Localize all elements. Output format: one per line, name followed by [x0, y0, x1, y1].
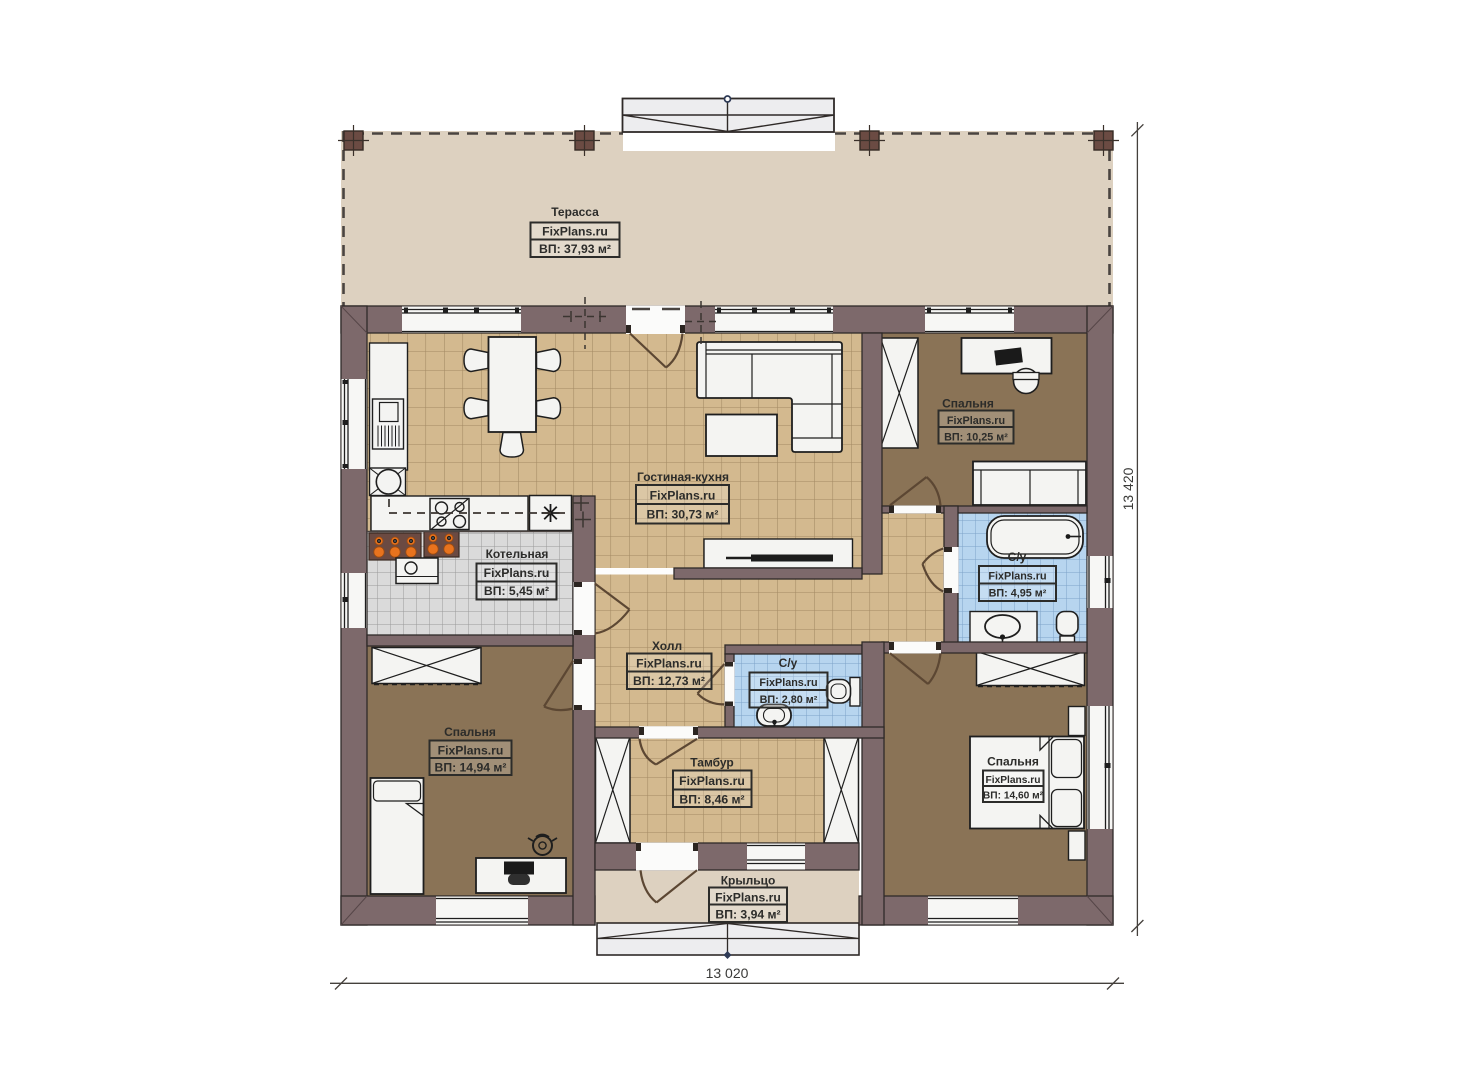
svg-text:FixPlans.ru: FixPlans.ru	[679, 774, 745, 788]
svg-text:ВП: 3,94 м²: ВП: 3,94 м²	[715, 908, 780, 922]
svg-text:С/у: С/у	[1008, 550, 1027, 564]
svg-text:Спальня: Спальня	[444, 725, 496, 739]
svg-text:FixPlans.ru: FixPlans.ru	[636, 657, 702, 671]
svg-text:Спальня: Спальня	[942, 397, 994, 411]
svg-text:Котельная: Котельная	[486, 547, 549, 561]
svg-text:Холл: Холл	[652, 639, 682, 653]
svg-text:Тамбур: Тамбур	[690, 756, 734, 770]
svg-text:FixPlans.ru: FixPlans.ru	[988, 571, 1046, 583]
svg-text:С/у: С/у	[779, 656, 798, 670]
svg-text:Терасса: Терасса	[551, 205, 599, 219]
svg-text:ВП: 30,73 м²: ВП: 30,73 м²	[647, 508, 719, 522]
svg-text:ВП: 14,94 м²: ВП: 14,94 м²	[435, 761, 507, 775]
svg-text:FixPlans.ru: FixPlans.ru	[986, 775, 1041, 786]
svg-text:FixPlans.ru: FixPlans.ru	[715, 891, 781, 905]
svg-text:ВП: 10,25 м²: ВП: 10,25 м²	[944, 432, 1008, 444]
svg-text:Спальня: Спальня	[987, 755, 1039, 769]
svg-text:ВП: 2,80 м²: ВП: 2,80 м²	[760, 694, 818, 706]
svg-text:ВП: 14,60 м²: ВП: 14,60 м²	[983, 791, 1044, 802]
svg-text:ВП: 8,46 м²: ВП: 8,46 м²	[679, 793, 744, 807]
svg-text:FixPlans.ru: FixPlans.ru	[484, 566, 550, 580]
svg-text:13 020: 13 020	[706, 965, 749, 981]
svg-text:ВП: 37,93 м²: ВП: 37,93 м²	[539, 242, 611, 256]
svg-text:ВП: 4,95 м²: ВП: 4,95 м²	[989, 588, 1047, 600]
svg-text:FixPlans.ru: FixPlans.ru	[650, 489, 716, 503]
svg-text:Крыльцо: Крыльцо	[721, 874, 776, 888]
svg-text:FixPlans.ru: FixPlans.ru	[759, 677, 817, 689]
svg-text:FixPlans.ru: FixPlans.ru	[438, 744, 504, 758]
svg-text:FixPlans.ru: FixPlans.ru	[947, 415, 1005, 427]
svg-text:FixPlans.ru: FixPlans.ru	[542, 225, 608, 239]
svg-text:ВП: 12,73 м²: ВП: 12,73 м²	[633, 674, 705, 688]
svg-text:Гостиная-кухня: Гостиная-кухня	[637, 470, 729, 484]
svg-text:ВП: 5,45 м²: ВП: 5,45 м²	[484, 584, 549, 598]
svg-text:13 420: 13 420	[1120, 467, 1136, 510]
